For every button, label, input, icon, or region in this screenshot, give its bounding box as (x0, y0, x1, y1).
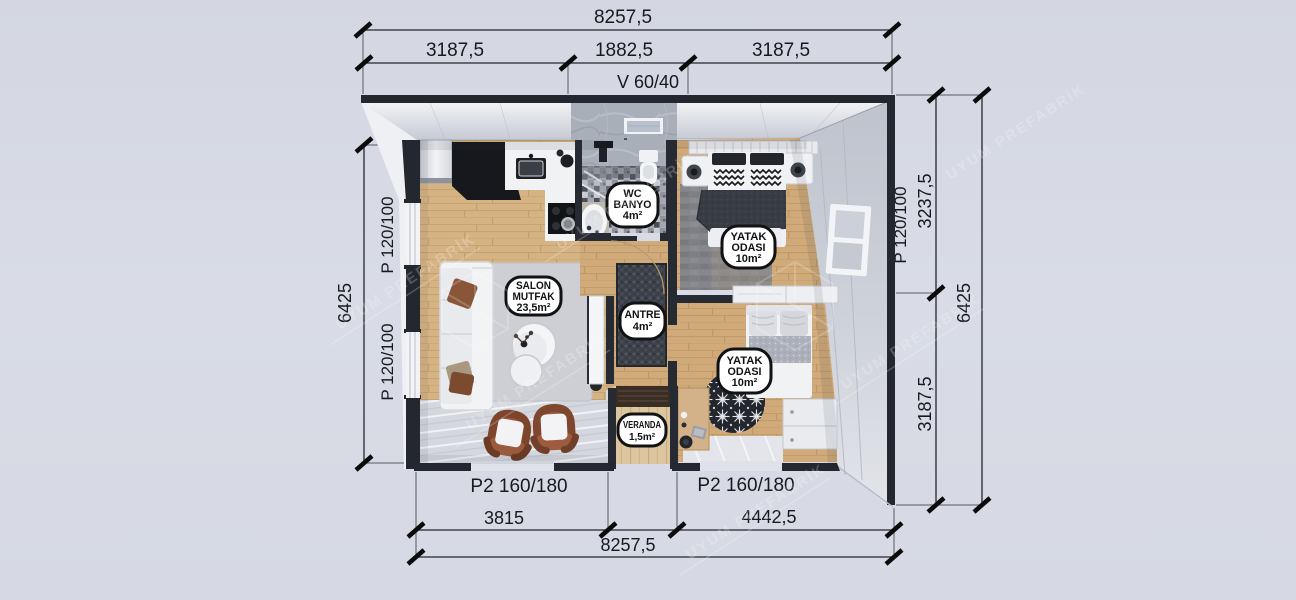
svg-text:8257,5: 8257,5 (600, 535, 655, 555)
svg-text:1,5m²: 1,5m² (629, 432, 656, 443)
svg-text:1882,5: 1882,5 (595, 40, 653, 61)
svg-text:3187,5: 3187,5 (915, 376, 935, 431)
svg-text:23,5m²: 23,5m² (517, 302, 551, 314)
svg-text:V 60/40: V 60/40 (617, 72, 679, 92)
svg-text:10m²: 10m² (736, 253, 762, 265)
svg-text:10m²: 10m² (732, 377, 758, 389)
svg-text:P 120/100: P 120/100 (378, 323, 397, 400)
svg-text:8257,5: 8257,5 (594, 7, 652, 28)
svg-text:3187,5: 3187,5 (752, 40, 810, 61)
svg-text:3187,5: 3187,5 (426, 40, 484, 61)
svg-text:P2 160/180: P2 160/180 (470, 476, 567, 497)
svg-text:3815: 3815 (484, 508, 524, 528)
svg-text:4m²: 4m² (633, 321, 653, 333)
svg-text:3237,5: 3237,5 (915, 173, 935, 228)
svg-text:P 120/100: P 120/100 (378, 196, 397, 273)
svg-text:ANTRE: ANTRE (625, 309, 661, 321)
svg-text:VERANDA: VERANDA (623, 420, 661, 431)
